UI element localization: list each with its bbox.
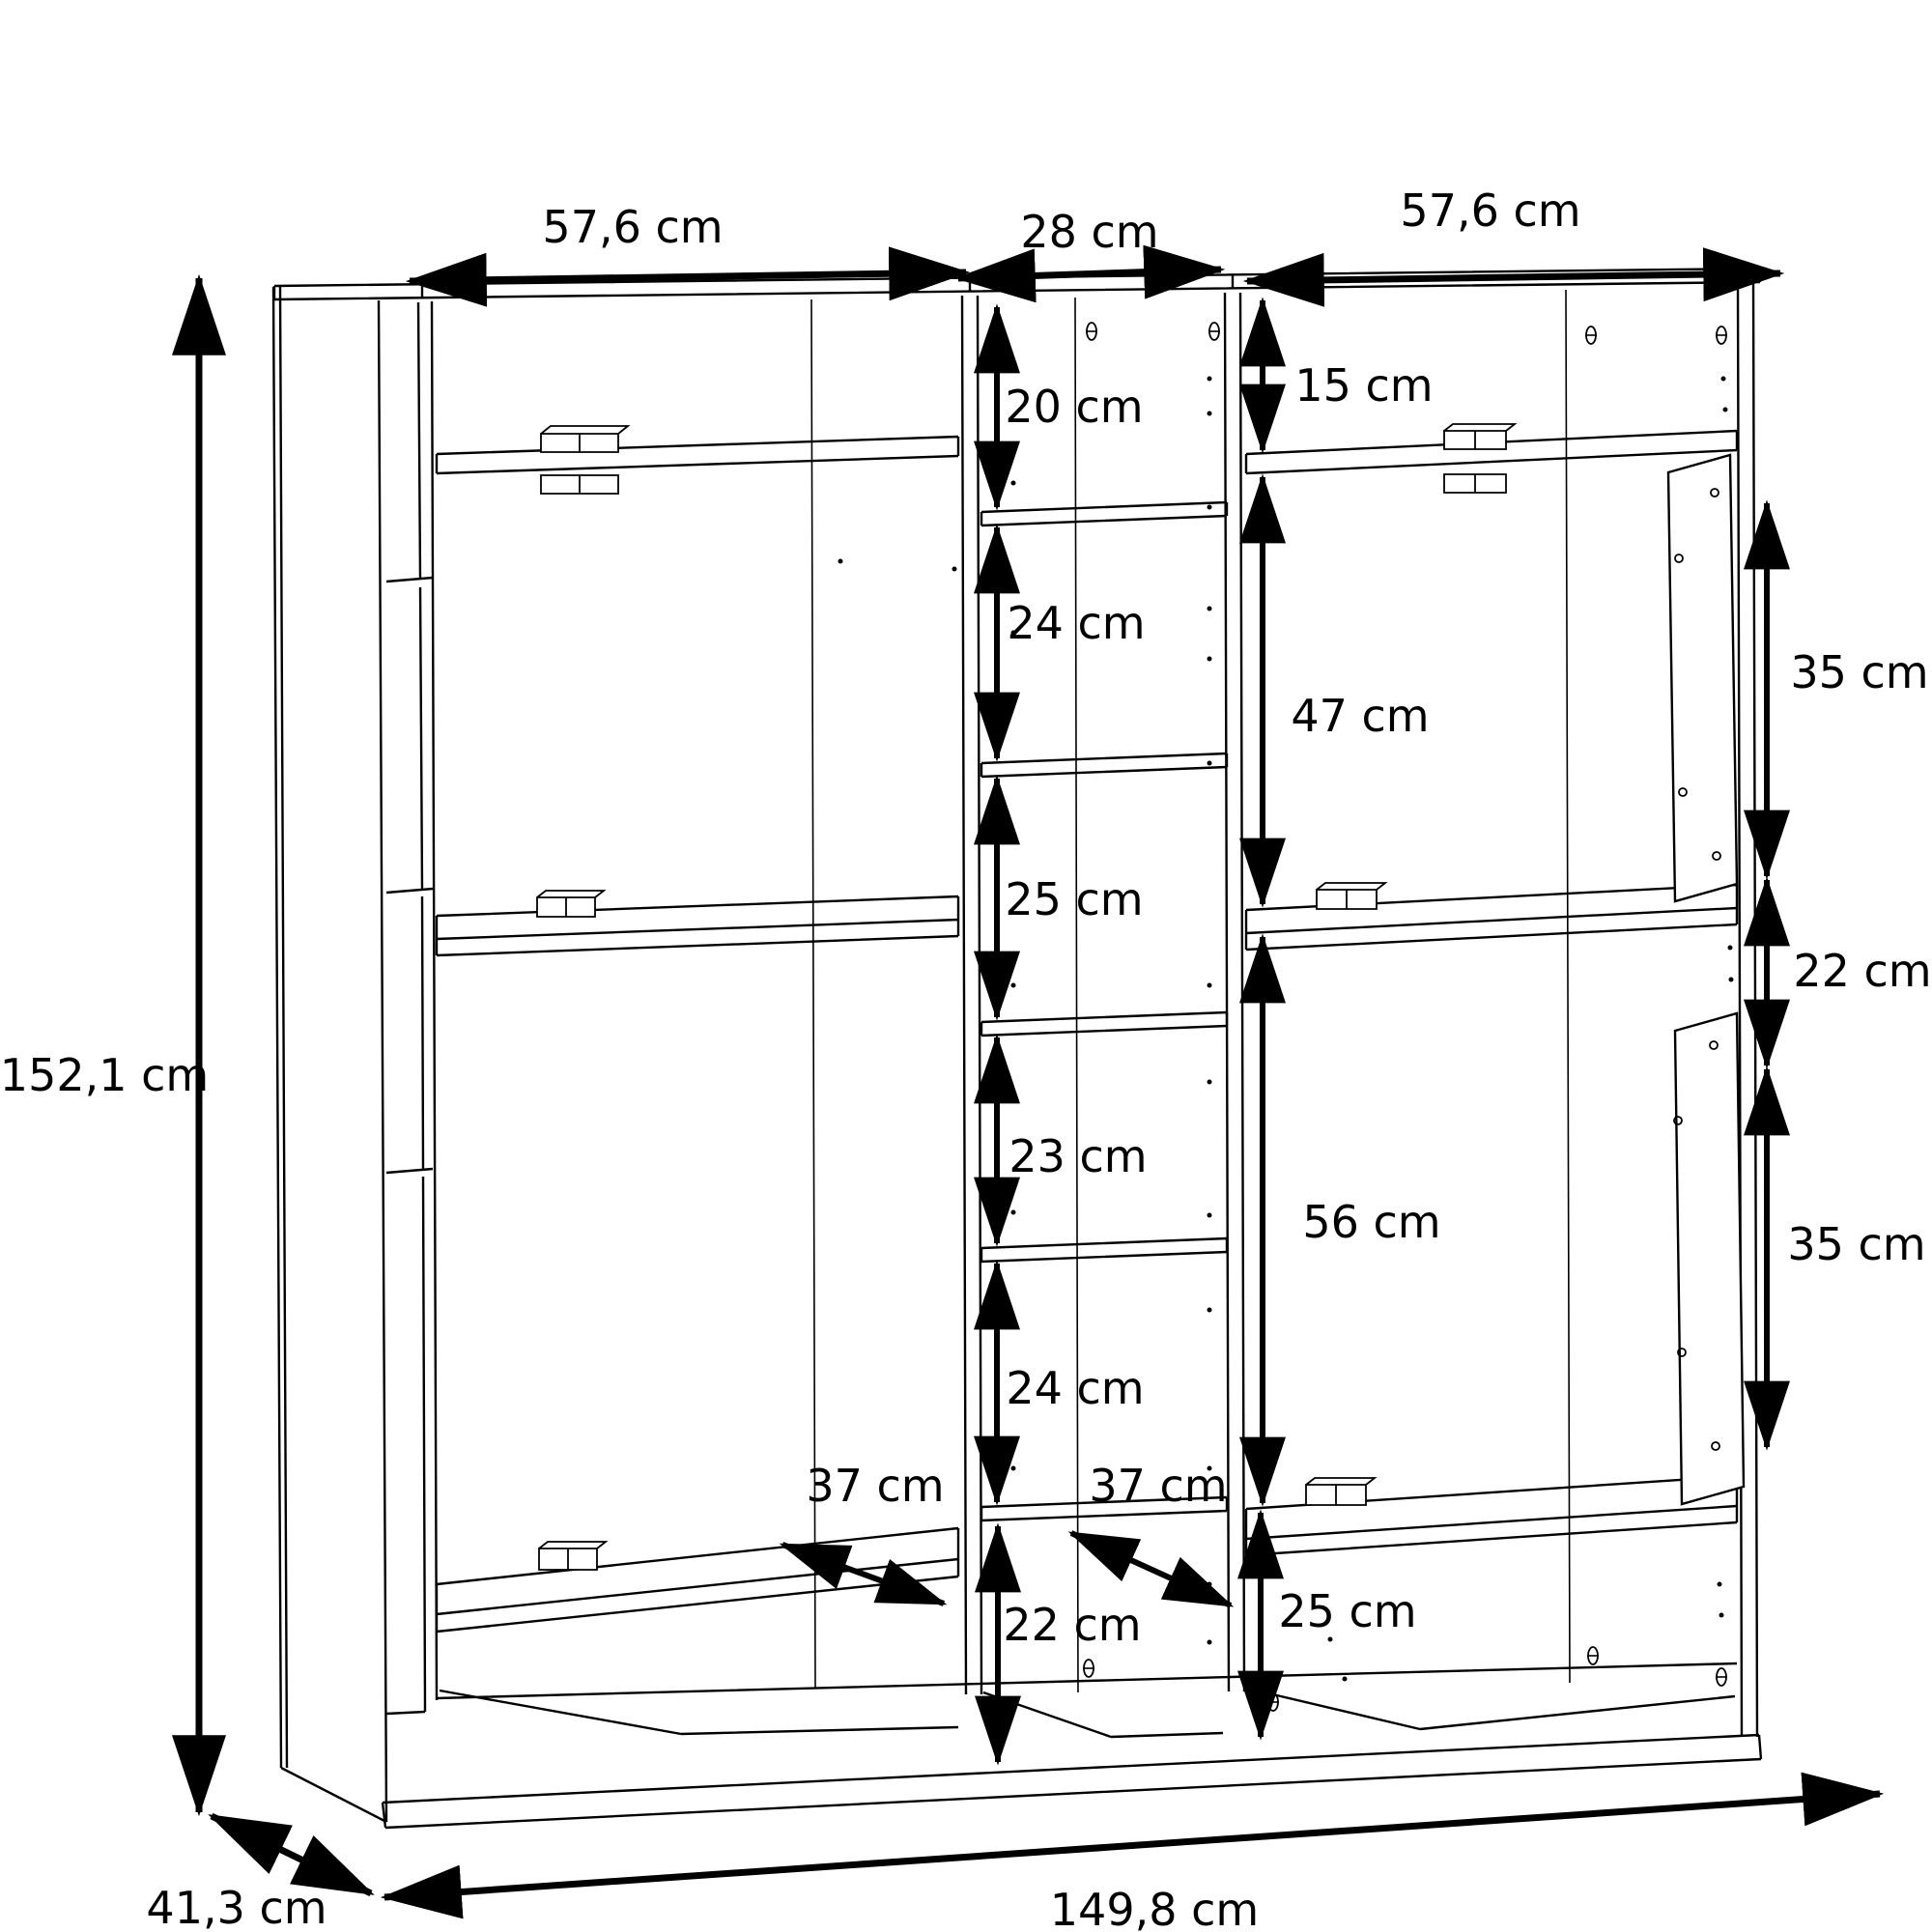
wardrobe-dimension-diagram: 57,6 cm 28 cm 57,6 cm 152,1 cm 15 cm 47 … (0, 0, 1932, 1932)
hinge-icon (539, 1542, 606, 1570)
label-right-25: 25 cm (1278, 1585, 1416, 1637)
hinge-icon (1317, 883, 1385, 909)
label-door-22: 22 cm (1793, 945, 1931, 997)
dimension-arrows (199, 270, 1880, 1897)
partition-left (962, 296, 981, 1694)
label-right-15: 15 cm (1294, 359, 1433, 412)
right-door-upper (1668, 455, 1737, 901)
label-height: 152,1 cm (0, 1049, 209, 1101)
cam-hole-icon (1585, 327, 1597, 344)
cam-hole-icon (1716, 327, 1727, 344)
floor-and-plinth (383, 1663, 1761, 1828)
label-door-35b: 35 cm (1787, 1218, 1925, 1270)
left-wall-edge (432, 301, 437, 1700)
hinge-icon (541, 426, 628, 452)
label-mid-23: 23 cm (1009, 1130, 1147, 1182)
hinge-icon (541, 475, 618, 494)
hinge-icon (1444, 424, 1515, 449)
label-right-56: 56 cm (1302, 1196, 1440, 1248)
label-mid-24a: 24 cm (1007, 597, 1145, 649)
dim-arrow-shelf-depth-middle (1071, 1533, 1231, 1605)
pin-holes-middle-right (1207, 377, 1212, 1645)
left-side-panel (273, 287, 386, 1822)
cam-hole-icon (1083, 1660, 1094, 1677)
right-wall-edge (1738, 281, 1757, 1737)
label-mid-20: 20 cm (1005, 381, 1143, 433)
label-depth: 41,3 cm (146, 1882, 327, 1932)
label-mid-24b: 24 cm (1006, 1362, 1144, 1414)
dim-arrow-top-middle-width (958, 270, 1221, 278)
label-door-35a: 35 cm (1790, 646, 1928, 698)
left-shelf-top (437, 437, 958, 473)
dim-arrow-total-width (384, 1794, 1880, 1897)
label-mid-25: 25 cm (1005, 873, 1143, 925)
label-total-width: 149,8 cm (1050, 1884, 1259, 1932)
hinge-icon (1306, 1478, 1375, 1505)
pin-holes-left-section (838, 559, 957, 572)
label-right-47: 47 cm (1291, 690, 1429, 742)
cam-hole-icon (1716, 1668, 1727, 1686)
label-top-right-width: 57,6 cm (1400, 185, 1580, 237)
label-mid-22: 22 cm (1003, 1599, 1141, 1651)
right-door-lower (1675, 1013, 1744, 1504)
technical-drawing-page: 57,6 cm 28 cm 57,6 cm 152,1 cm 15 cm 47 … (0, 0, 1932, 1932)
left-door-edge (386, 302, 433, 1714)
left-shelf-middle (437, 896, 958, 955)
label-top-middle-width: 28 cm (1020, 206, 1158, 258)
label-top-left-width: 57,6 cm (542, 201, 723, 253)
cam-hole-icon (1208, 323, 1220, 340)
cam-hole-icon (1587, 1647, 1599, 1664)
hinge-icon (1444, 474, 1506, 493)
cam-hole-icon (1086, 323, 1097, 340)
wardrobe-structure (273, 269, 1761, 1828)
hinge-icon (537, 891, 604, 917)
cam-hole-icon (1267, 1693, 1279, 1711)
label-shelf-depth-left: 37 cm (806, 1460, 944, 1512)
drill-holes (838, 323, 1734, 1711)
label-shelf-depth-middle: 37 cm (1089, 1460, 1227, 1512)
